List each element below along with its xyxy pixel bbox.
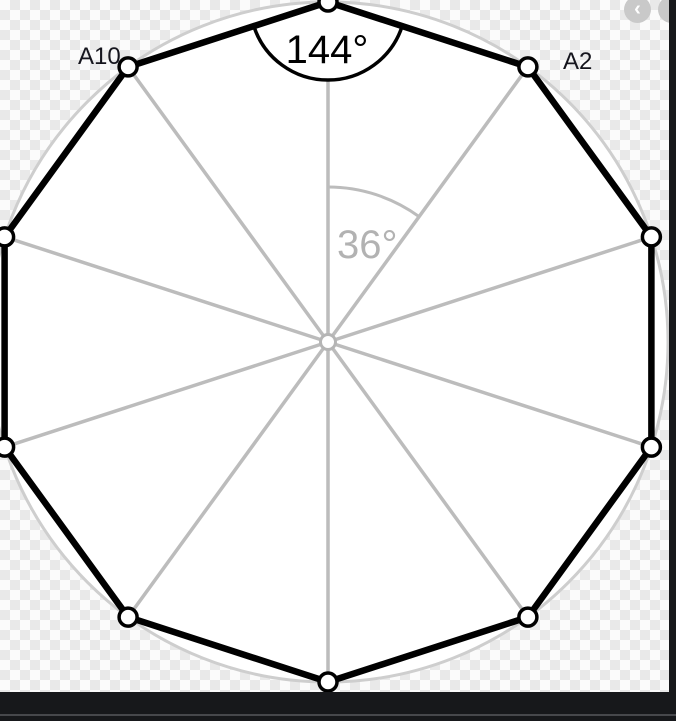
- vertex-label-a10: A10: [78, 43, 121, 70]
- center-point[interactable]: [321, 335, 336, 350]
- vertex-point[interactable]: [519, 608, 537, 626]
- central-angle-label: 36°: [337, 223, 398, 267]
- interior-angle-label: 144°: [286, 28, 369, 72]
- right-edge-panel: [669, 0, 676, 721]
- vertex-point[interactable]: [119, 608, 137, 626]
- vertex-label-a2: A2: [563, 48, 592, 75]
- vertex-point[interactable]: [519, 58, 537, 76]
- vertex-point[interactable]: [0, 228, 14, 246]
- vertex-point[interactable]: [319, 0, 337, 11]
- vertex-point[interactable]: [0, 438, 14, 456]
- geometry-canvas: 36° 144° A10 A2 ‹ ›: [0, 0, 676, 721]
- vertex-point[interactable]: [642, 438, 660, 456]
- vertex-point[interactable]: [119, 58, 137, 76]
- chevron-left-icon: ‹: [634, 0, 641, 19]
- vertex-point[interactable]: [319, 673, 337, 691]
- bottom-bar-divider: [0, 714, 676, 716]
- decagon-figure: 36° 144° A10 A2: [0, 0, 676, 721]
- bottom-bar: [0, 692, 676, 721]
- vertex-point[interactable]: [642, 228, 660, 246]
